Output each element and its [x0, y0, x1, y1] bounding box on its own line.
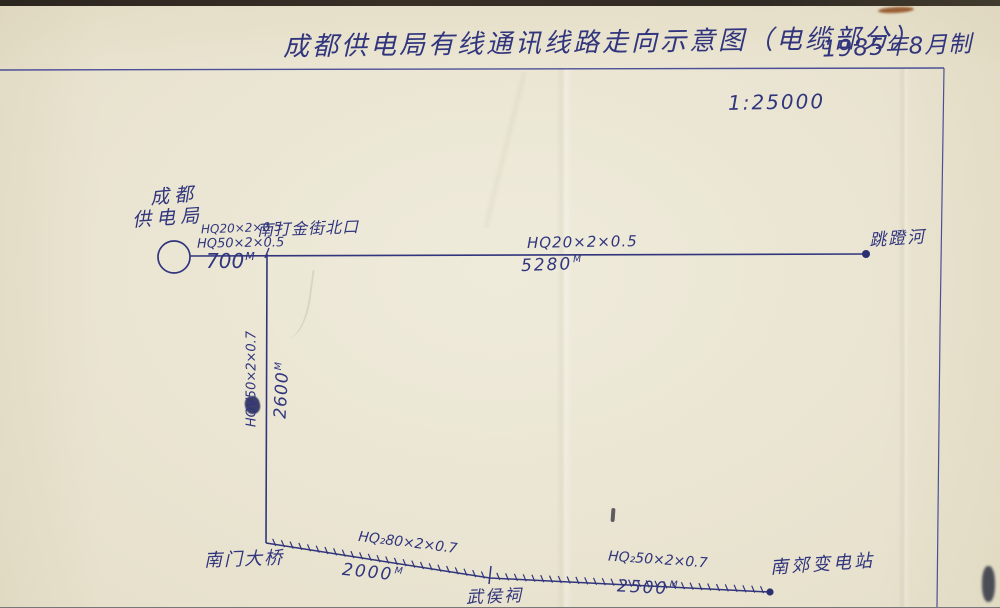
- frame-border-right: [937, 68, 944, 607]
- cable-label-trunk-east: HQ20×2×0.5: [527, 232, 638, 252]
- node-label-dajinjie: 南打金街北口: [257, 213, 360, 241]
- terminal-dot-tiaodenghe: [862, 250, 870, 258]
- scanned-diagram-page: 成都供电局有线通讯线路走向示意图（电缆部分） 1985年8月制 1:25000 …: [0, 0, 1000, 607]
- cable-label-south: HQV50×2×0.7: [245, 331, 260, 427]
- distance-label-700m: 700M: [206, 249, 255, 273]
- edition-label: 1985年8月制: [821, 24, 972, 63]
- node-label-bureau-line2: 供电局: [131, 201, 205, 233]
- distance-label-2500m: 2500M: [617, 576, 680, 599]
- scale-label: 1:25000: [728, 89, 825, 115]
- distance-label-5280m: 5280M: [521, 254, 584, 276]
- terminal-dot-nanjiao: [766, 588, 773, 595]
- distance-label-2600m: 2600M: [271, 361, 294, 419]
- frame-border-top: [0, 68, 944, 70]
- node-label-wuhouci: 武侯祠: [466, 581, 524, 608]
- node-label-tiaodenghe: 跳蹬河: [868, 222, 927, 251]
- diagram-linework: [0, 0, 1000, 607]
- node-circle-bureau: [158, 241, 190, 273]
- node-label-nanmen: 南门大桥: [204, 544, 285, 573]
- line-dajinjie-to-nanmen: [266, 254, 267, 543]
